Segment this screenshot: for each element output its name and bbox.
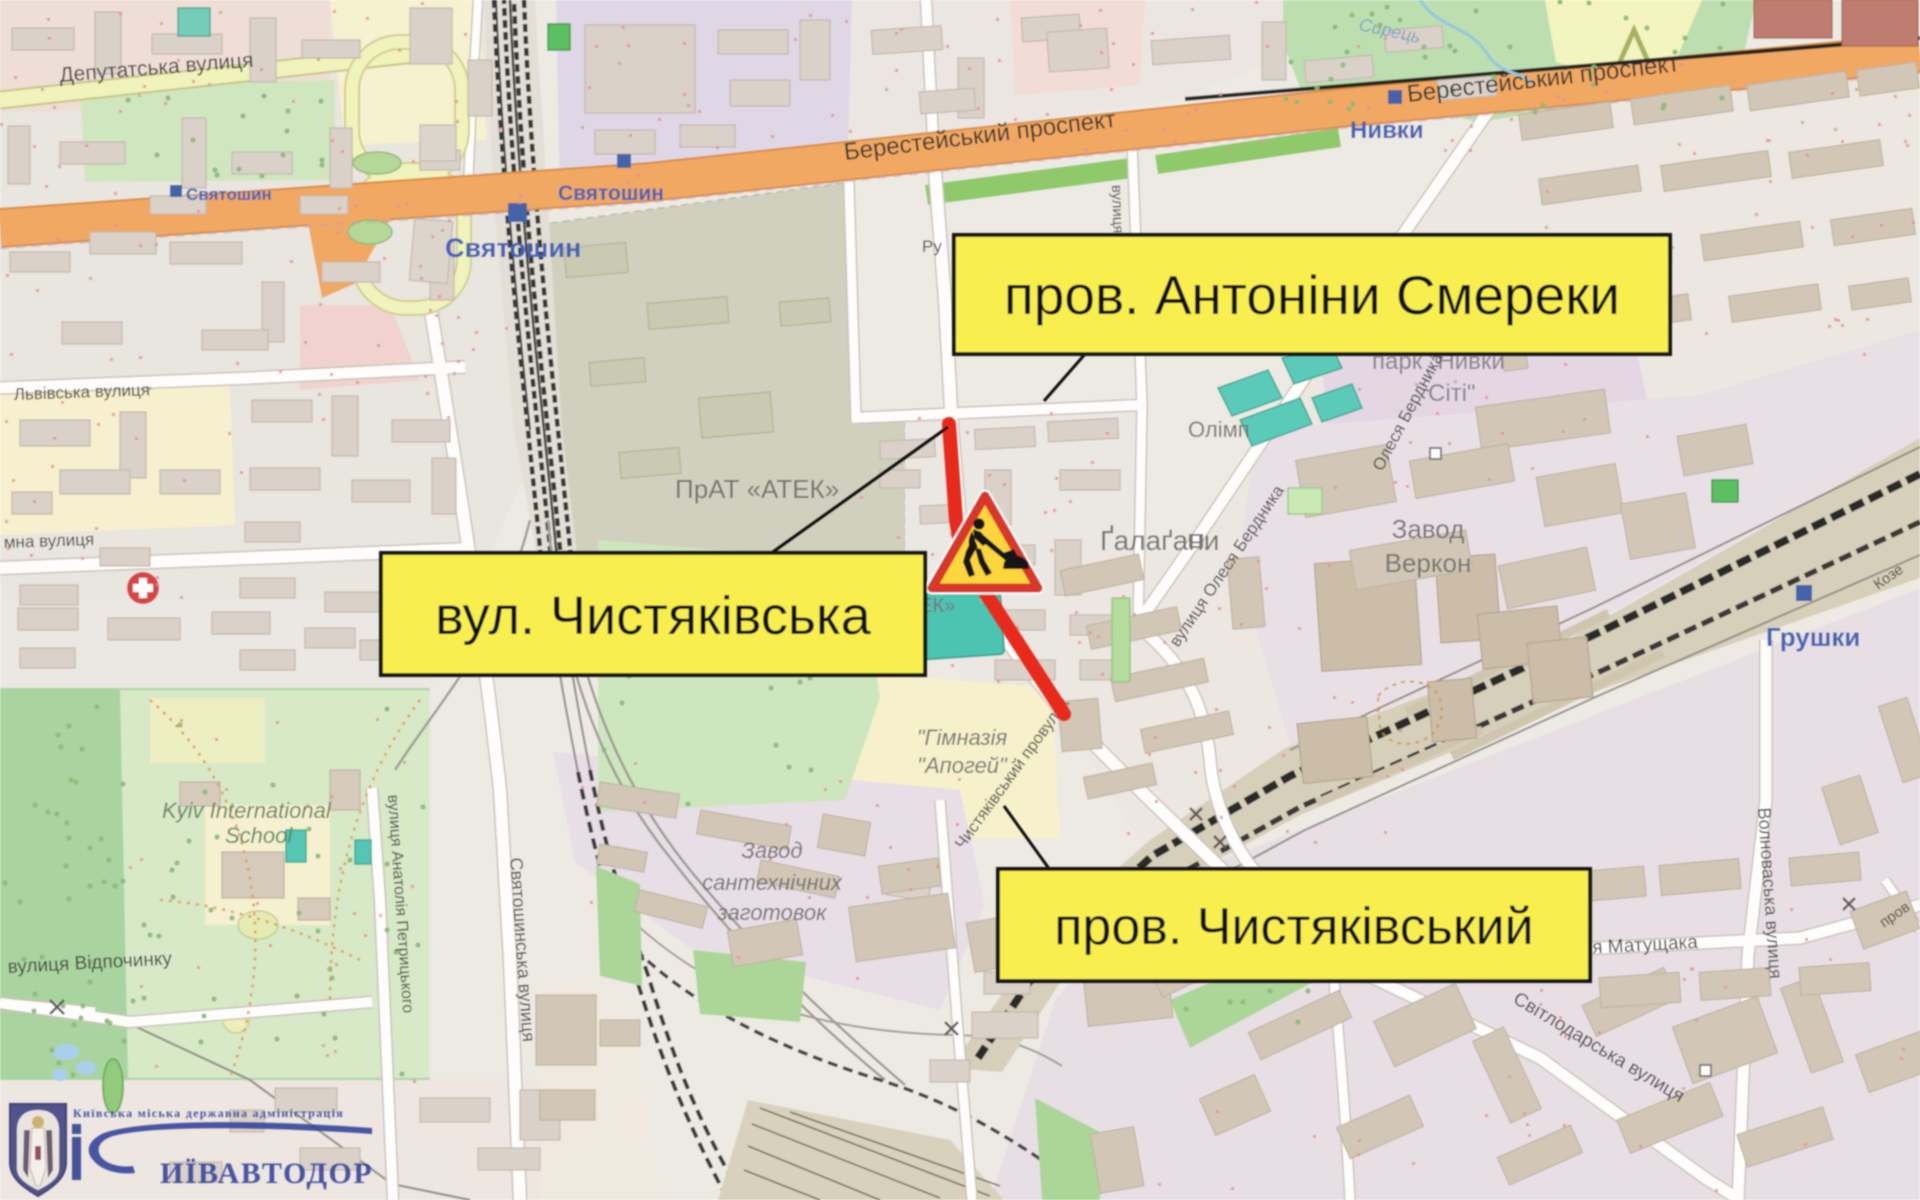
svg-text:пров. Чистяківський: пров. Чистяківський (1054, 898, 1533, 956)
svg-text:Київська міська державна ад: Київська міська державна адміністрація (73, 1106, 344, 1120)
svg-text:ИЇВАВТОДОР: ИЇВАВТОДОР (160, 1157, 373, 1190)
svg-text:пров. Антоніни Смереки: пров. Антоніни Смереки (1004, 264, 1620, 326)
svg-text:вул. Чистяківська: вул. Чистяківська (435, 586, 872, 646)
